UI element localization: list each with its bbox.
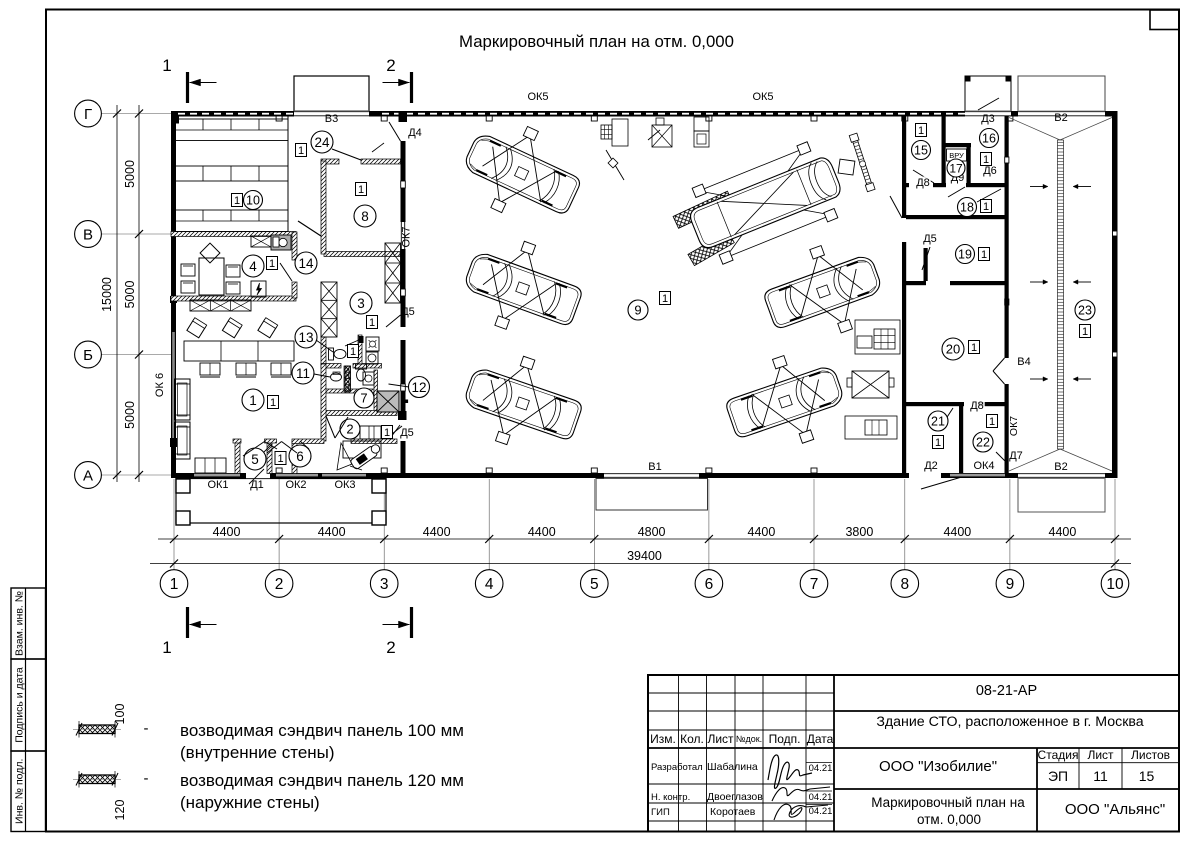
svg-text:ОК3: ОК3 xyxy=(334,479,355,491)
svg-text:(внутренние стены): (внутренние стены) xyxy=(180,743,335,762)
svg-text:11: 11 xyxy=(1093,768,1108,784)
svg-text:Коротаев: Коротаев xyxy=(710,806,756,818)
svg-text:Здание СТО, расположенное в г.: Здание СТО, расположенное в г. Москва xyxy=(876,714,1143,730)
svg-text:ОК5: ОК5 xyxy=(527,91,548,103)
svg-text:1: 1 xyxy=(170,576,179,593)
svg-text:9: 9 xyxy=(1006,576,1015,593)
svg-text:4: 4 xyxy=(249,259,257,274)
svg-text:возводимая сэндвич панель 100: возводимая сэндвич панель 100 мм xyxy=(180,721,464,740)
svg-text:1: 1 xyxy=(983,154,989,166)
svg-text:4400: 4400 xyxy=(423,525,451,539)
svg-text:ООО "Альянс": ООО "Альянс" xyxy=(1065,801,1165,818)
svg-text:Д4: Д4 xyxy=(408,127,422,139)
svg-text:1: 1 xyxy=(1082,326,1088,338)
svg-text:3800: 3800 xyxy=(845,525,873,539)
svg-text:11: 11 xyxy=(296,366,310,381)
svg-text:8: 8 xyxy=(361,209,369,224)
svg-text:В: В xyxy=(83,226,93,243)
svg-text:Д5: Д5 xyxy=(923,233,937,245)
svg-text:-: - xyxy=(144,720,149,737)
svg-text:120: 120 xyxy=(113,800,127,821)
svg-text:4400: 4400 xyxy=(1049,525,1077,539)
svg-text:24: 24 xyxy=(314,135,330,150)
svg-text:В3: В3 xyxy=(325,113,338,125)
svg-text:Лист: Лист xyxy=(707,732,734,746)
svg-text:19: 19 xyxy=(958,248,972,262)
svg-text:5: 5 xyxy=(251,452,259,467)
svg-text:2: 2 xyxy=(386,638,395,657)
svg-text:4400: 4400 xyxy=(528,525,556,539)
svg-text:5000: 5000 xyxy=(123,401,137,429)
svg-text:20: 20 xyxy=(946,342,960,357)
svg-text:Разработал: Разработал xyxy=(651,762,703,773)
svg-text:9: 9 xyxy=(634,303,641,318)
svg-text:-: - xyxy=(144,770,149,787)
svg-text:04.21: 04.21 xyxy=(809,763,833,774)
svg-text:ОК2: ОК2 xyxy=(285,479,306,491)
svg-text:В4: В4 xyxy=(1017,356,1030,368)
svg-text:7: 7 xyxy=(360,391,367,406)
svg-text:4400: 4400 xyxy=(748,525,776,539)
svg-text:04.21: 04.21 xyxy=(809,792,833,803)
svg-text:1: 1 xyxy=(983,201,989,213)
svg-text:Д5: Д5 xyxy=(400,427,414,439)
svg-text:Маркировочный план на: Маркировочный план на xyxy=(871,795,1025,810)
svg-text:1: 1 xyxy=(162,56,171,75)
svg-text:6: 6 xyxy=(296,449,304,464)
svg-text:А: А xyxy=(83,467,93,484)
svg-text:Д7: Д7 xyxy=(1009,450,1023,462)
svg-text:отм. 0,000: отм. 0,000 xyxy=(917,812,981,827)
svg-text:04.21: 04.21 xyxy=(809,806,833,817)
svg-text:1: 1 xyxy=(298,145,304,157)
svg-text:Б: Б xyxy=(83,347,93,364)
svg-text:1: 1 xyxy=(384,427,390,439)
svg-text:ОК5: ОК5 xyxy=(752,91,773,103)
svg-text:1: 1 xyxy=(918,125,924,137)
svg-text:Д8: Д8 xyxy=(970,400,984,412)
svg-text:12: 12 xyxy=(411,380,426,395)
svg-text:1: 1 xyxy=(234,195,240,207)
svg-text:2: 2 xyxy=(275,576,284,593)
svg-text:10: 10 xyxy=(246,194,260,208)
svg-text:ГИП: ГИП xyxy=(651,807,670,818)
svg-text:Н. контр.: Н. контр. xyxy=(651,792,690,803)
svg-text:Кол.: Кол. xyxy=(680,732,704,746)
svg-text:1: 1 xyxy=(981,249,987,261)
svg-text:1: 1 xyxy=(935,437,941,449)
svg-text:В1: В1 xyxy=(648,461,661,473)
svg-text:21: 21 xyxy=(931,415,945,429)
svg-text:100: 100 xyxy=(113,704,127,725)
svg-text:1: 1 xyxy=(971,342,977,354)
svg-text:возводимая сэндвич панель 120: возводимая сэндвич панель 120 мм xyxy=(180,771,464,790)
svg-text:8: 8 xyxy=(900,576,909,593)
svg-text:Маркировочный план на отм. 0,0: Маркировочный план на отм. 0,000 xyxy=(459,32,734,51)
svg-text:4400: 4400 xyxy=(213,525,241,539)
svg-text:Шабалина: Шабалина xyxy=(707,761,758,773)
svg-text:5000: 5000 xyxy=(123,160,137,188)
svg-text:5: 5 xyxy=(590,576,599,593)
svg-text:18: 18 xyxy=(960,201,974,215)
svg-text:14: 14 xyxy=(298,256,314,271)
svg-text:2: 2 xyxy=(386,56,395,75)
svg-text:ОК 6: ОК 6 xyxy=(154,373,166,397)
svg-text:Д8: Д8 xyxy=(916,177,930,189)
svg-text:23: 23 xyxy=(1078,304,1092,318)
svg-text:5000: 5000 xyxy=(123,281,137,309)
svg-text:Д3: Д3 xyxy=(981,113,995,125)
svg-text:Инв. № подл.: Инв. № подл. xyxy=(14,759,26,824)
svg-text:1: 1 xyxy=(369,317,375,329)
svg-text:3: 3 xyxy=(380,576,389,593)
svg-text:ЭП: ЭП xyxy=(1048,768,1068,784)
svg-text:15: 15 xyxy=(914,144,928,158)
svg-text:7: 7 xyxy=(810,576,819,593)
svg-text:Д6: Д6 xyxy=(983,165,997,177)
svg-text:1: 1 xyxy=(350,346,356,358)
svg-text:Г: Г xyxy=(84,106,92,123)
svg-text:15: 15 xyxy=(1139,768,1155,784)
svg-text:1: 1 xyxy=(989,416,995,428)
svg-text:1: 1 xyxy=(358,184,364,196)
svg-text:Листов: Листов xyxy=(1131,748,1170,762)
svg-text:В2: В2 xyxy=(1054,461,1067,473)
svg-text:1: 1 xyxy=(269,258,275,270)
svg-text:№док.: №док. xyxy=(736,734,762,744)
svg-text:15000: 15000 xyxy=(100,277,114,312)
svg-text:ОК1: ОК1 xyxy=(207,479,228,491)
svg-text:4: 4 xyxy=(485,576,494,593)
svg-text:Дата: Дата xyxy=(807,732,834,746)
svg-text:Лист: Лист xyxy=(1087,748,1114,762)
svg-text:08-21-АР: 08-21-АР xyxy=(976,683,1037,699)
svg-text:Взам. инв. №: Взам. инв. № xyxy=(14,591,26,656)
svg-text:1: 1 xyxy=(162,638,171,657)
svg-text:1: 1 xyxy=(249,393,257,408)
svg-text:22: 22 xyxy=(976,436,990,450)
svg-text:Д2: Д2 xyxy=(924,460,938,472)
svg-text:ОК4: ОК4 xyxy=(973,460,994,472)
svg-text:17: 17 xyxy=(949,161,963,175)
svg-text:Д5: Д5 xyxy=(401,306,415,318)
svg-text:1: 1 xyxy=(662,293,668,305)
svg-text:4800: 4800 xyxy=(638,525,666,539)
svg-text:6: 6 xyxy=(705,576,714,593)
svg-text:ОК7: ОК7 xyxy=(401,226,413,247)
svg-text:ООО "Изобилие": ООО "Изобилие" xyxy=(879,758,997,775)
svg-text:1: 1 xyxy=(277,453,283,465)
svg-text:ОК7: ОК7 xyxy=(1008,416,1020,436)
svg-text:4400: 4400 xyxy=(318,525,346,539)
svg-text:2: 2 xyxy=(346,422,353,437)
svg-text:Стадия: Стадия xyxy=(1038,748,1079,762)
svg-text:В2: В2 xyxy=(1054,112,1067,124)
svg-text:(наружние стены): (наружние стены) xyxy=(180,793,320,812)
svg-text:13: 13 xyxy=(298,330,313,345)
svg-text:Подп.: Подп. xyxy=(769,732,801,746)
svg-text:Подпись и дата: Подпись и дата xyxy=(14,667,26,743)
svg-text:39400: 39400 xyxy=(627,549,662,563)
svg-text:10: 10 xyxy=(1106,576,1124,593)
svg-text:Изм.: Изм. xyxy=(650,732,676,746)
svg-text:4400: 4400 xyxy=(943,525,971,539)
svg-text:Двоеглазов: Двоеглазов xyxy=(707,791,763,803)
svg-text:16: 16 xyxy=(982,132,996,146)
svg-text:1: 1 xyxy=(270,397,276,409)
svg-text:3: 3 xyxy=(357,296,365,311)
